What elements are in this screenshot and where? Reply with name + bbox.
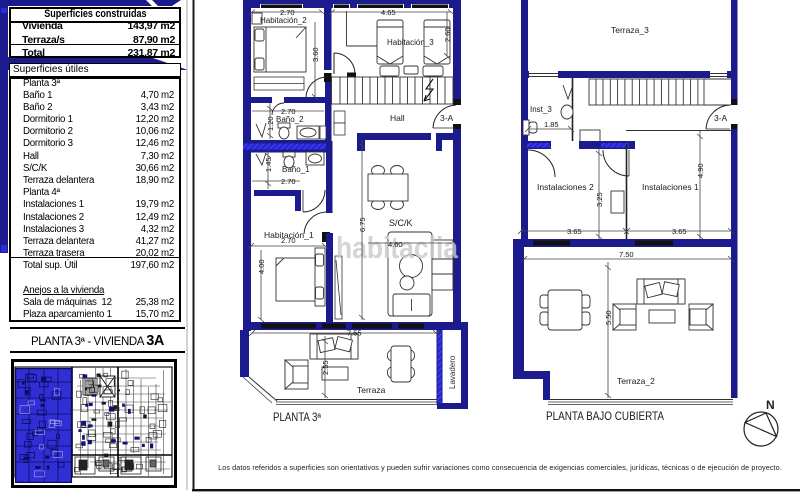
svg-text:S/C/K: S/C/K xyxy=(389,218,413,228)
svg-text:1.45: 1.45 xyxy=(264,157,273,172)
svg-text:2.60: 2.60 xyxy=(443,27,452,42)
svg-text:1.85: 1.85 xyxy=(544,120,559,129)
svg-text:Instalaciones 2: Instalaciones 2 xyxy=(537,182,594,192)
svg-text:Terraza_2: Terraza_2 xyxy=(617,376,655,386)
svg-text:4.00: 4.00 xyxy=(257,259,266,274)
svg-text:Hall: Hall xyxy=(390,113,405,123)
svg-text:Habitación_1: Habitación_1 xyxy=(264,230,314,240)
svg-text:2.55: 2.55 xyxy=(321,360,330,375)
svg-text:4.65: 4.65 xyxy=(381,8,396,17)
svg-text:Inst_3: Inst_3 xyxy=(530,105,552,114)
svg-text:3-A: 3-A xyxy=(440,113,454,123)
svg-text:6.75: 6.75 xyxy=(358,217,367,232)
svg-text:7.50: 7.50 xyxy=(619,250,634,259)
svg-text:N: N xyxy=(766,398,775,412)
svg-text:3.65: 3.65 xyxy=(567,227,582,236)
svg-text:3-A: 3-A xyxy=(714,113,728,123)
svg-text:3.60: 3.60 xyxy=(311,47,320,62)
svg-text:PLANTA 3ª: PLANTA 3ª xyxy=(273,412,322,424)
svg-text:3.65: 3.65 xyxy=(672,227,687,236)
svg-text:4.90: 4.90 xyxy=(696,163,705,178)
svg-text:Terraza: Terraza xyxy=(357,385,386,395)
svg-text:5.50: 5.50 xyxy=(604,310,613,325)
svg-text:3.25: 3.25 xyxy=(595,192,604,207)
svg-text:4.60: 4.60 xyxy=(388,240,403,249)
svg-text:Habitación_2: Habitación_2 xyxy=(260,16,307,25)
svg-text:Baño_1: Baño_1 xyxy=(282,165,310,174)
svg-text:7.55: 7.55 xyxy=(347,329,362,338)
svg-text:Instalaciones 1: Instalaciones 1 xyxy=(642,182,699,192)
svg-text:Habitación_3: Habitación_3 xyxy=(387,38,434,47)
svg-text:1.20: 1.20 xyxy=(266,116,275,131)
svg-text:2.70: 2.70 xyxy=(281,177,296,186)
svg-text:Terraza_3: Terraza_3 xyxy=(611,25,649,35)
svg-text:PLANTA BAJO CUBIERTA: PLANTA BAJO CUBIERTA xyxy=(546,411,664,423)
svg-text:Baño_2: Baño_2 xyxy=(276,115,304,124)
svg-text:Lavadero: Lavadero xyxy=(448,355,457,389)
